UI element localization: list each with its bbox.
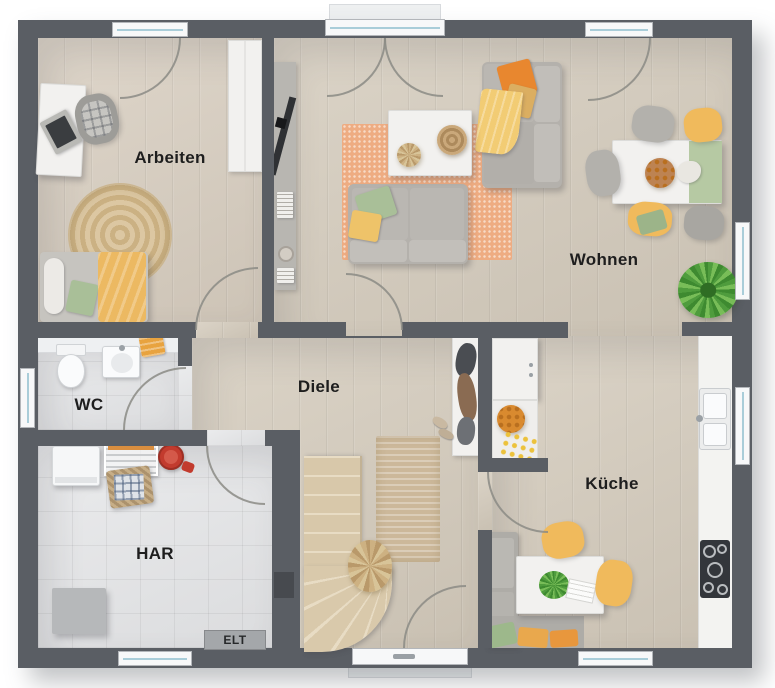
window-glass	[742, 392, 744, 460]
room-label-har: HAR	[105, 544, 205, 564]
burner	[703, 545, 716, 558]
wall-arbeiten-wohnen	[262, 38, 274, 338]
room-label-diele: Diele	[269, 377, 369, 397]
sofa-large	[482, 62, 562, 188]
bench-cushion	[490, 538, 514, 588]
burner	[717, 584, 728, 595]
window-glass	[123, 658, 187, 660]
wall-kueche-south	[478, 530, 492, 648]
wall-har-east	[272, 446, 300, 648]
potted-plant	[678, 262, 738, 318]
wall-kueche-north	[682, 322, 732, 336]
window-dining	[585, 22, 653, 37]
door-handle	[393, 654, 415, 659]
laundry-cloth	[114, 474, 145, 501]
sink-basin	[703, 423, 727, 446]
faucet	[696, 415, 703, 422]
shelf-books	[277, 268, 294, 283]
green-pillow	[65, 279, 99, 316]
washer-panel	[55, 477, 97, 483]
elt-panel: ELT	[204, 630, 266, 650]
window-kueche-east	[735, 387, 750, 465]
burner	[707, 562, 723, 578]
cabinet-handle	[529, 373, 533, 377]
table-plant	[539, 571, 569, 599]
window-arbeiten	[112, 22, 188, 37]
faucet	[119, 345, 125, 351]
washing-machine	[52, 446, 100, 486]
kitchen-counter-left	[492, 400, 538, 462]
wall-wc-har	[38, 430, 207, 446]
kitchen-counter-right	[698, 336, 732, 648]
dried-plant-vase	[397, 143, 421, 167]
wall-kueche-stub	[478, 458, 548, 472]
room-label-kueche: Küche	[562, 474, 662, 494]
window-glass	[330, 27, 440, 29]
green-cloth	[636, 209, 668, 236]
laundry-basket	[106, 465, 155, 509]
wall-arbeiten-south	[38, 322, 196, 338]
storage-box	[52, 588, 106, 634]
shelf-books	[277, 192, 293, 218]
flower-bowl	[645, 158, 675, 188]
bucket	[158, 444, 184, 470]
back-cushion	[409, 240, 466, 262]
dining-chair-yellow	[627, 201, 673, 238]
doorway-kueche	[478, 472, 492, 530]
yellow-blanket	[98, 252, 146, 322]
laptop-screen	[45, 115, 77, 148]
burner	[717, 544, 727, 554]
back-cushion	[534, 124, 560, 182]
coat	[455, 372, 480, 422]
wall-diele-kueche	[478, 336, 492, 462]
sink-basin	[703, 393, 727, 419]
sink-basin	[111, 353, 133, 373]
daybed	[40, 252, 148, 322]
cooktop	[700, 540, 730, 598]
back-cushion	[350, 240, 407, 262]
notebook	[565, 578, 597, 603]
window-glass	[583, 658, 648, 660]
window-kueche-south	[578, 651, 653, 666]
window-wohnen-east	[735, 222, 750, 300]
dining-chair-gray	[683, 204, 726, 241]
bucket-inner	[164, 450, 178, 464]
doorway-arbeiten	[196, 322, 258, 338]
orange-pillow	[517, 627, 549, 649]
window-glass	[590, 29, 648, 31]
orange-pillow	[549, 629, 578, 648]
room-label-arbeiten: Arbeiten	[110, 148, 230, 168]
yellow-pillow	[348, 210, 382, 243]
round-box	[278, 246, 294, 262]
doorway-wc	[178, 366, 192, 430]
window-glass	[27, 373, 29, 423]
coat-rack	[452, 334, 480, 456]
bolster-pillow	[44, 258, 64, 314]
doorway-har	[207, 430, 265, 446]
toilet	[56, 344, 86, 390]
burner	[703, 582, 714, 593]
room-label-wohnen: Wohnen	[544, 250, 664, 270]
elt-panel-label: ELT	[205, 631, 265, 649]
coffee-table	[388, 110, 472, 176]
coat	[456, 416, 476, 445]
decor-bowl	[437, 125, 467, 155]
fruit-bowl	[497, 405, 525, 433]
floor-plan: ELT	[0, 0, 775, 688]
room-label-wc: WC	[59, 395, 119, 415]
bench-bottom	[486, 616, 584, 648]
sink	[102, 346, 140, 378]
window-glass	[742, 227, 744, 295]
kitchen-tall-cabinet	[492, 338, 538, 400]
window-har	[118, 651, 192, 666]
cabinet-handle	[529, 363, 533, 367]
seat-cushion	[410, 188, 464, 240]
wardrobe-cabinet	[228, 40, 262, 172]
pampas-plant	[348, 540, 392, 592]
window-wc	[20, 368, 35, 428]
hanging-cloth	[108, 446, 154, 450]
toilet-bowl	[57, 354, 85, 388]
wall-diele-wohnen-west	[258, 322, 346, 338]
back-cushion	[534, 66, 560, 122]
front-door	[352, 648, 468, 665]
dining-table	[612, 140, 722, 204]
wall-shelf	[274, 62, 296, 290]
plant-pot	[700, 283, 716, 298]
plaid-blanket	[79, 98, 116, 139]
window-glass	[117, 29, 183, 31]
terrace-door	[325, 19, 445, 36]
wall-wc-east	[178, 338, 192, 366]
sofa-small	[348, 184, 468, 264]
shaft	[274, 572, 294, 598]
kitchen-sink	[699, 388, 731, 450]
wall-har-corner	[265, 430, 300, 446]
breakfast-table	[516, 556, 604, 614]
